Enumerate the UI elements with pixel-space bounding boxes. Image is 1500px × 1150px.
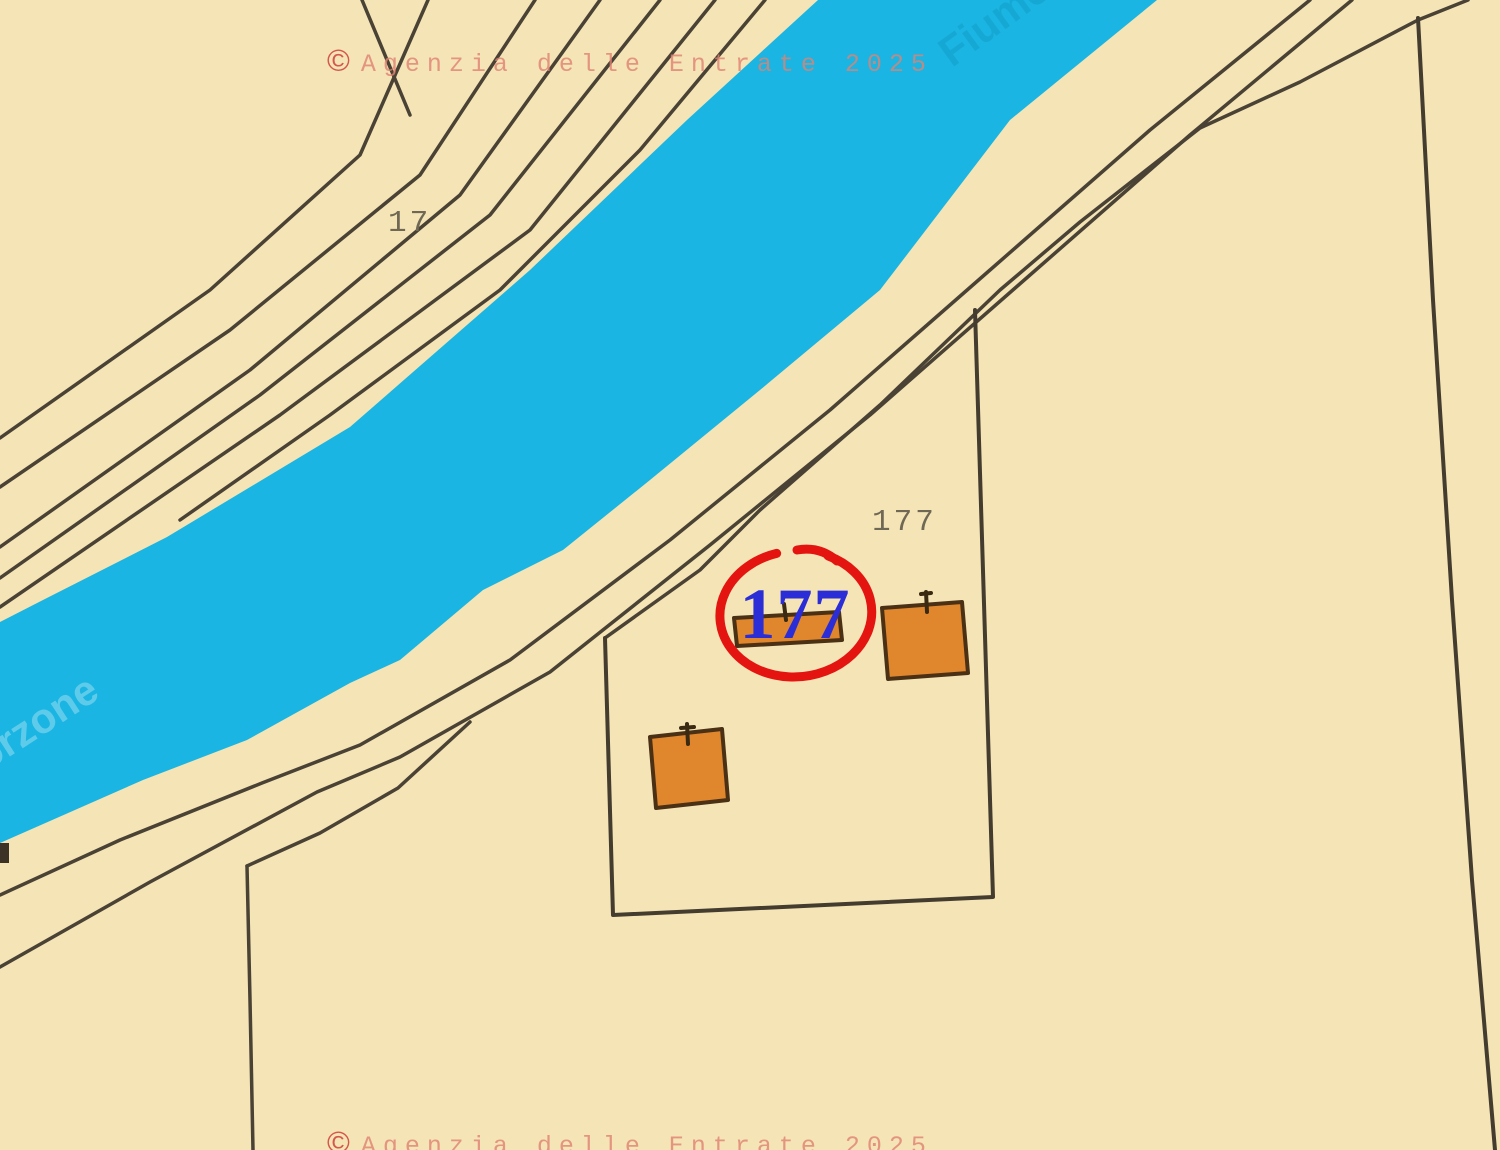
copyright-icon: ©	[327, 43, 357, 78]
highlighted-parcel-number: 177	[740, 574, 851, 654]
parcel-17-label: 17	[388, 206, 431, 241]
building-square-east[interactable]	[882, 602, 968, 679]
copyright-icon: ©	[327, 1125, 357, 1150]
edge-artifact	[0, 843, 9, 863]
map-canvas[interactable]: Fiume orzone	[0, 0, 1500, 1150]
parcel-177-label: 177	[872, 505, 937, 540]
